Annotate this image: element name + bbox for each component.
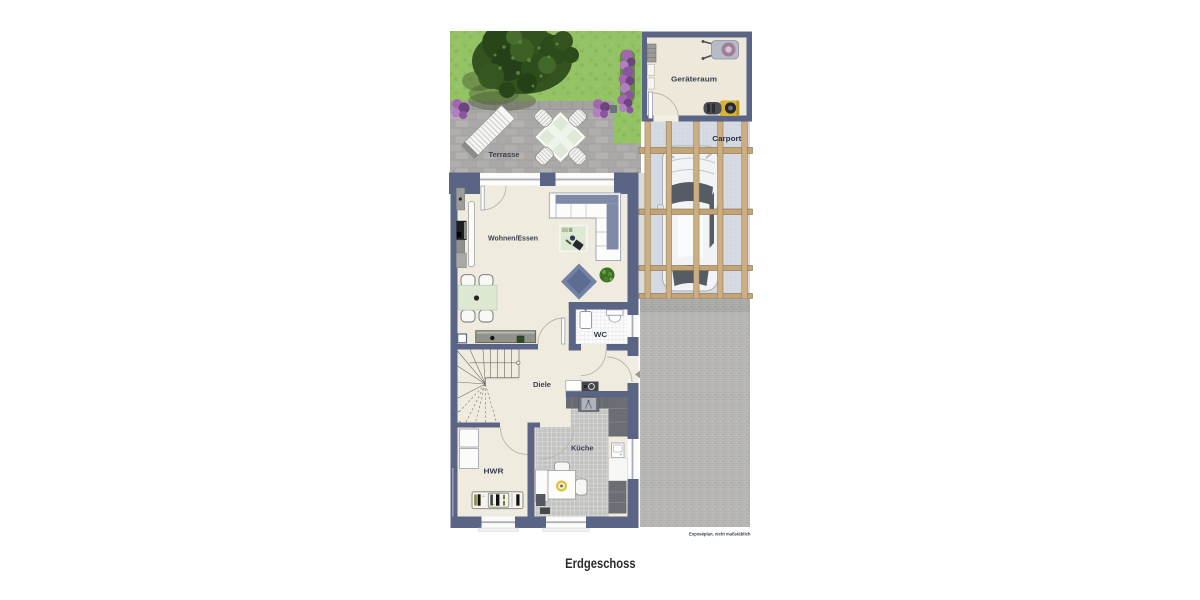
svg-text:HWR: HWR	[484, 466, 505, 475]
svg-text:Küche: Küche	[571, 444, 594, 453]
svg-text:Exposéplan, nicht maßstäblich: Exposéplan, nicht maßstäblich	[689, 531, 751, 537]
svg-text:Carport: Carport	[712, 134, 742, 143]
svg-text:Erdgeschoss: Erdgeschoss	[565, 555, 636, 571]
svg-text:Terrasse: Terrasse	[489, 150, 520, 159]
svg-text:WC: WC	[594, 330, 608, 339]
svg-text:Geräteraum: Geräteraum	[671, 75, 717, 84]
svg-text:Wohnen/Essen: Wohnen/Essen	[488, 233, 538, 242]
svg-text:Diele: Diele	[533, 380, 551, 389]
